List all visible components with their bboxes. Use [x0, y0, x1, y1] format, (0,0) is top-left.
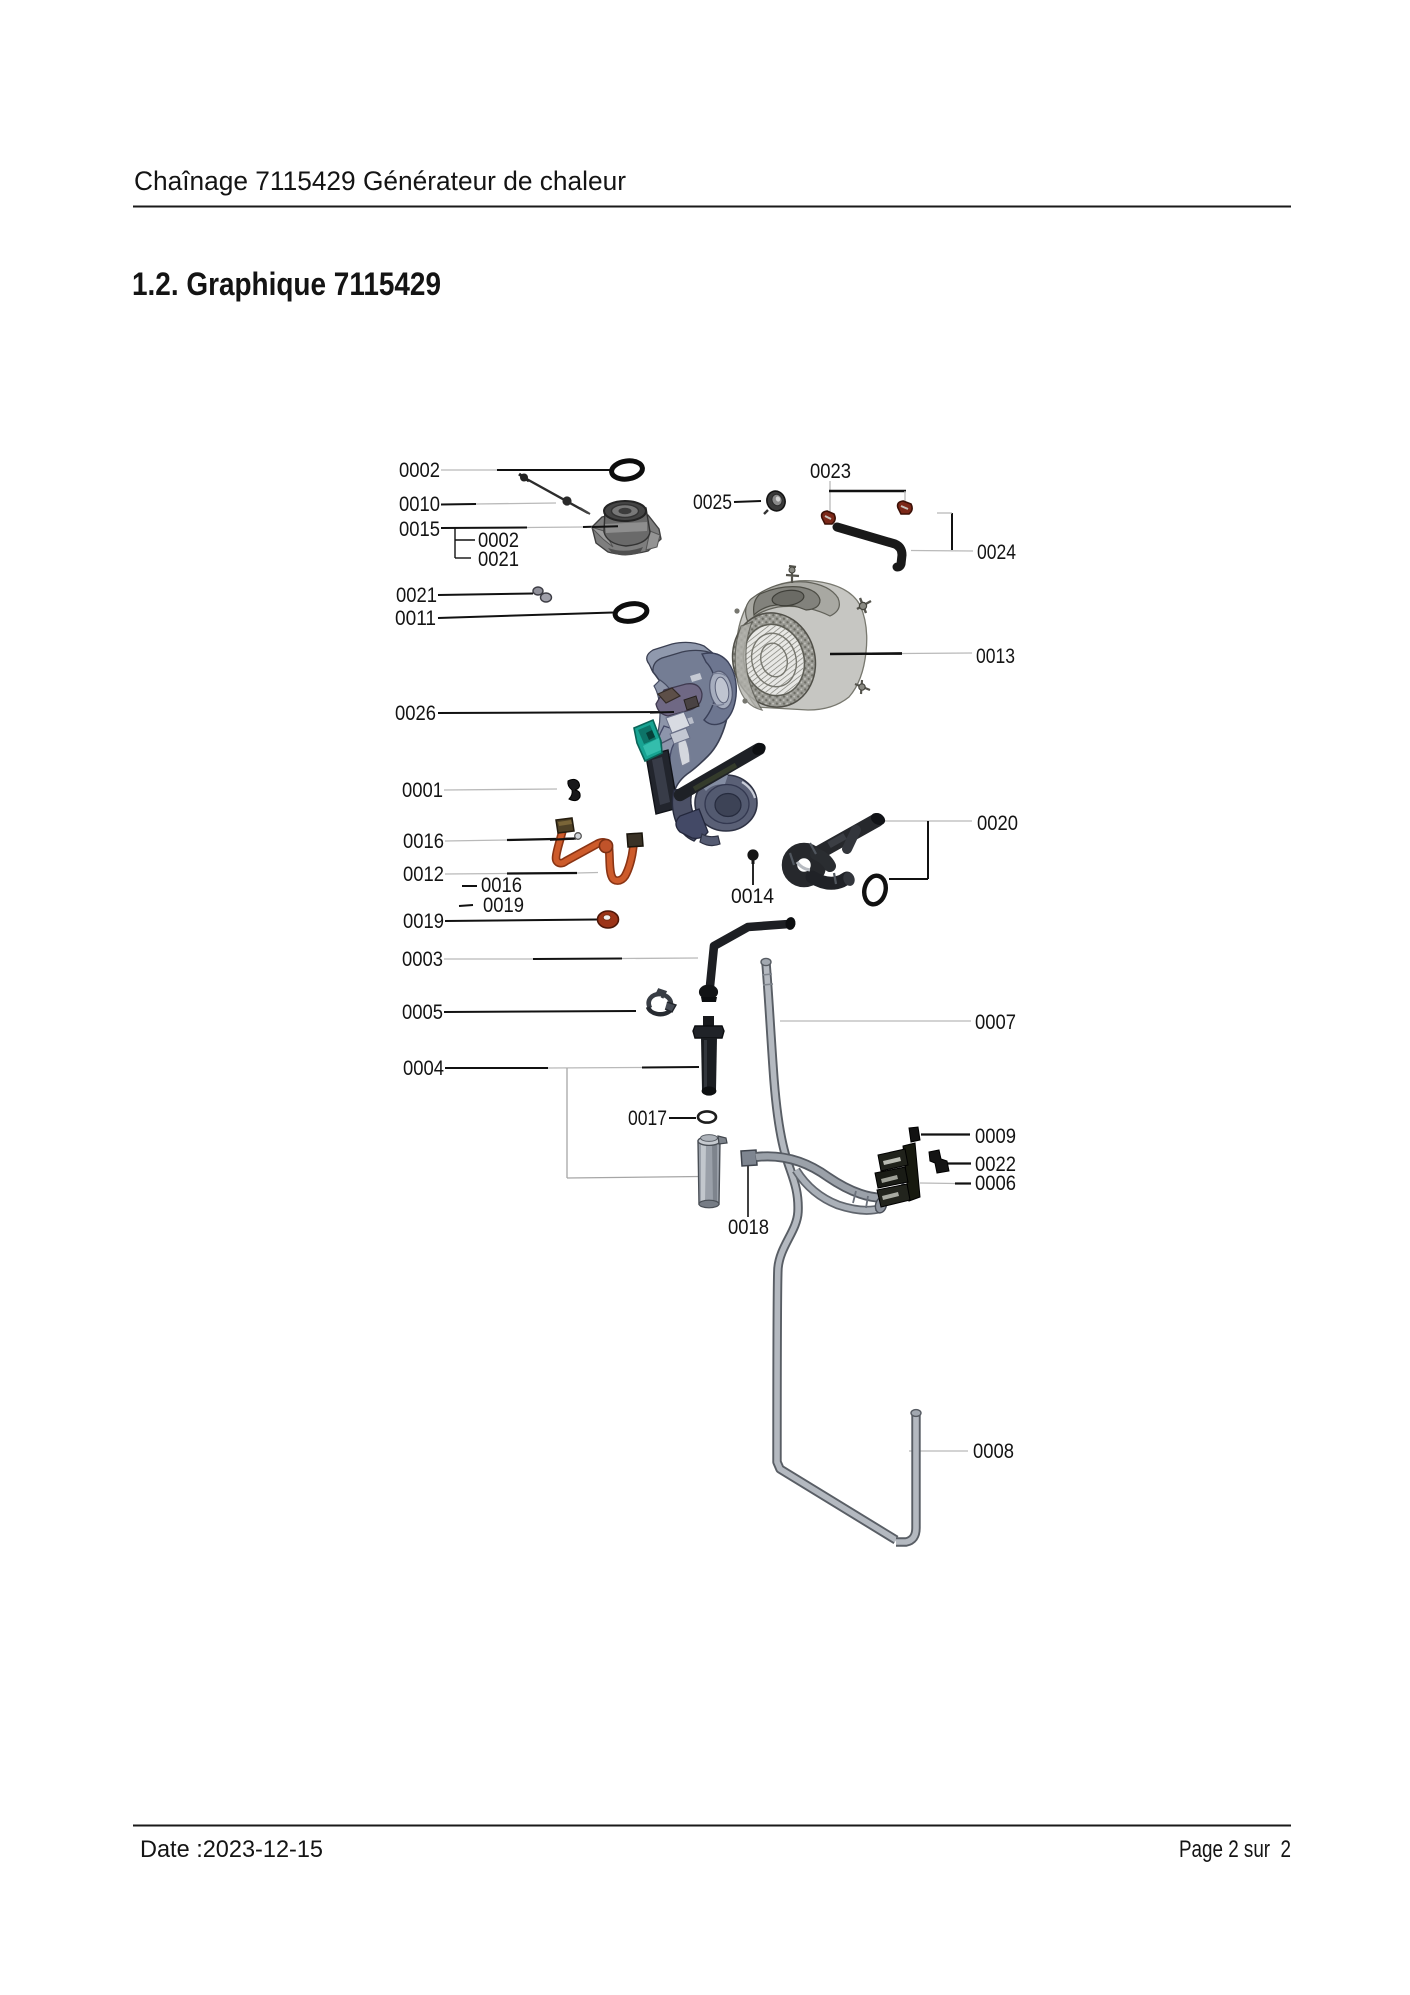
svg-text:0026: 0026 — [395, 702, 436, 725]
svg-text:0008: 0008 — [973, 1440, 1014, 1463]
svg-text:0003: 0003 — [402, 948, 443, 971]
svg-text:0024: 0024 — [977, 541, 1016, 564]
svg-text:0014: 0014 — [731, 885, 774, 908]
svg-text:0017: 0017 — [628, 1107, 667, 1130]
svg-text:0010: 0010 — [399, 493, 440, 516]
svg-text:0013: 0013 — [976, 645, 1015, 668]
svg-text:0005: 0005 — [402, 1001, 443, 1024]
svg-text:0025: 0025 — [693, 491, 732, 514]
svg-text:0012: 0012 — [403, 863, 444, 886]
svg-text:0018: 0018 — [728, 1216, 769, 1239]
svg-text:0001: 0001 — [402, 779, 443, 802]
svg-text:0021: 0021 — [478, 548, 519, 571]
svg-text:0020: 0020 — [977, 812, 1018, 835]
svg-text:Date :2023-12-15: Date :2023-12-15 — [140, 1836, 323, 1863]
svg-text:0009: 0009 — [975, 1125, 1016, 1148]
svg-text:0006: 0006 — [975, 1172, 1016, 1195]
svg-text:0019: 0019 — [483, 894, 524, 917]
svg-text:0004: 0004 — [403, 1057, 444, 1080]
svg-text:1.2. Graphique 7115429: 1.2. Graphique 7115429 — [132, 266, 441, 302]
svg-text:0023: 0023 — [810, 460, 851, 483]
svg-text:Page 2 sur 2: Page 2 sur 2 — [1179, 1836, 1291, 1863]
svg-text:0016: 0016 — [403, 830, 444, 853]
svg-text:0015: 0015 — [399, 518, 440, 541]
svg-text:Chaînage 7115429 Générateur de: Chaînage 7115429 Générateur de chaleur — [134, 166, 626, 196]
svg-text:0019: 0019 — [403, 910, 444, 933]
svg-text:0011: 0011 — [395, 607, 436, 630]
svg-text:0007: 0007 — [975, 1011, 1016, 1034]
svg-text:0021: 0021 — [396, 584, 437, 607]
svg-text:0002: 0002 — [399, 459, 440, 482]
